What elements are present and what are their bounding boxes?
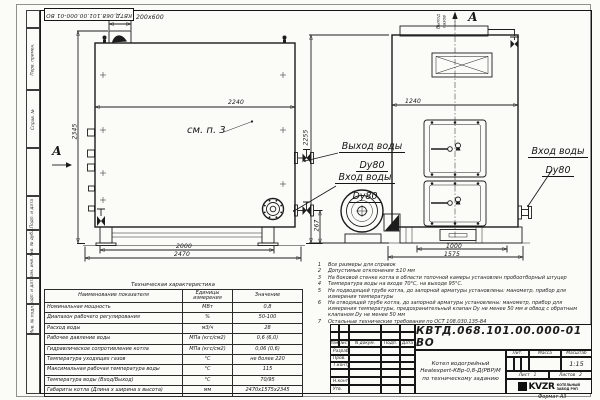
dim-width-2240: 2240 bbox=[228, 99, 244, 106]
col-list: Лист bbox=[339, 340, 349, 347]
format-label: Формат А3 bbox=[538, 394, 566, 400]
callout-see-note-3: см. п. 3 bbox=[187, 125, 226, 136]
spec-table: Наименование показателя Единицы измерени… bbox=[44, 289, 303, 397]
view-a-arrow-icon bbox=[52, 162, 72, 168]
chimney-damper bbox=[112, 35, 127, 42]
dim-chimney: 200х600 bbox=[136, 14, 164, 21]
dim-front-width-1240: 1240 bbox=[405, 98, 421, 105]
spec-row: Максимальная рабочая температура воды°С1… bbox=[45, 365, 303, 375]
product-name: Котел водогрейный Heatexpert-КВр-0,8-Д(Р… bbox=[415, 350, 506, 394]
front-view-linework bbox=[338, 12, 532, 244]
spec-row: Гидравлическое сопротивление котлаМПа (к… bbox=[45, 344, 303, 354]
anchor-cross-marks bbox=[100, 72, 286, 203]
section-a-letter: А bbox=[468, 10, 478, 24]
row-nkontr: Н.контр. bbox=[330, 377, 349, 385]
sheets-cell: Листов2 bbox=[549, 371, 592, 379]
spec-row: Номинальная мощностьМВт0,8 bbox=[45, 303, 303, 313]
spec-row: Диапазон рабочего регулирования%50-100 bbox=[45, 313, 303, 323]
col-podp: Подп. bbox=[381, 340, 400, 347]
row-prov: Пров. bbox=[330, 355, 349, 362]
spec-table-title: Техническая характеристика bbox=[44, 282, 302, 288]
view-a-letter: А bbox=[52, 144, 62, 158]
lifting-eye-icon bbox=[103, 36, 287, 44]
scale-value: 1:15 bbox=[561, 357, 592, 371]
mass-value bbox=[529, 357, 561, 371]
dimension-extension-lines bbox=[77, 21, 523, 262]
dim-base-1000: 1000 bbox=[446, 243, 462, 250]
drain-valve-icon bbox=[97, 209, 105, 226]
row-utv: Утв. bbox=[330, 385, 349, 394]
spec-col-value: Значение bbox=[233, 290, 303, 303]
side-view-linework bbox=[52, 28, 314, 246]
spec-col-name: Наименование показателя bbox=[45, 290, 183, 303]
sheet-cell: Лист1 bbox=[506, 371, 549, 379]
row-razrab: Разраб. bbox=[330, 347, 349, 355]
mass-label: Масса bbox=[529, 350, 561, 357]
dim-front-height-2255: 2255 bbox=[303, 125, 310, 151]
spec-header-row: Наименование показателя Единицы измерени… bbox=[45, 290, 303, 303]
label-gas-outlet: Выход газов bbox=[437, 5, 448, 39]
dimension-lines bbox=[78, 24, 523, 258]
spec-row: Температура воды (Вход/Выход)°С70/95 bbox=[45, 375, 303, 385]
spec-row: Рабочее давление водыМПа (кгс/см2)0,6 (6… bbox=[45, 334, 303, 344]
label-water-inlet-right: Вход воды Dy80 bbox=[522, 139, 594, 177]
label-water-inlet: Вход воды Dy80 bbox=[326, 165, 404, 203]
drawing-sheet: Перв. примен. Справ. № Подп. и дата Инв.… bbox=[0, 0, 600, 400]
col-izm: Изм. bbox=[330, 340, 339, 347]
scale-label: Масштаб bbox=[561, 350, 592, 357]
note-item: 5На подводящей трубе котла, до запорной … bbox=[315, 289, 589, 301]
spec-row: Расход водым3/ч28 bbox=[45, 323, 303, 333]
row-tkontr: Т.контр. bbox=[330, 362, 349, 369]
technical-notes: 1Все размеры для справок 2Допустимые отк… bbox=[315, 263, 589, 326]
title-block-doc-number: КВТД.068.101.00.000-01 ВО bbox=[415, 324, 592, 350]
spec-col-units: Единицы измерения bbox=[183, 290, 233, 303]
dim-length-2470: 2470 bbox=[174, 251, 190, 258]
dim-supports-2000: 2000 bbox=[176, 243, 192, 250]
dim-base-overall-1575: 1575 bbox=[444, 251, 460, 258]
kvzr-logo-icon bbox=[518, 382, 527, 391]
explosion-hatch-icon bbox=[432, 53, 492, 77]
kvzr-logo-text: KVZR bbox=[528, 382, 554, 392]
spec-row: Габариты котла (Длина х ширина х высота)… bbox=[45, 386, 303, 396]
col-doc: N докум. bbox=[349, 340, 381, 347]
company-cell: KVZR КОТЕЛЬНЫЙ ЗАВОД РЭП bbox=[506, 379, 592, 394]
base-frame-linework bbox=[338, 227, 530, 243]
col-data: Дата bbox=[400, 340, 415, 347]
company-name: КОТЕЛЬНЫЙ ЗАВОД РЭП bbox=[557, 383, 580, 391]
dim-conn-height-267: 267 bbox=[314, 217, 321, 235]
lit-label: Лит. bbox=[506, 350, 529, 357]
front-water-inlet-icon bbox=[518, 206, 532, 219]
note-item: 6На отводящей трубе котла, до запорной а… bbox=[315, 301, 589, 319]
dim-height-2345: 2345 bbox=[72, 117, 79, 147]
flange-icon bbox=[263, 199, 284, 220]
spec-row: Температура уходящих газов°Сне более 220 bbox=[45, 354, 303, 364]
